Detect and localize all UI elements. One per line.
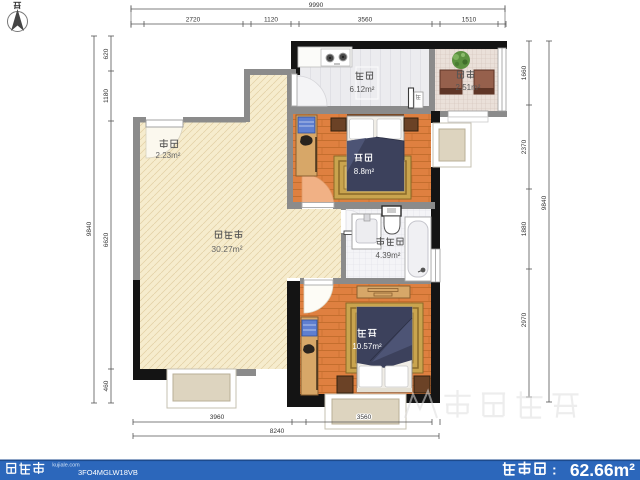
svg-text:2370: 2370 [521,139,528,154]
svg-text:1510: 1510 [462,17,477,24]
svg-text:10.57m²: 10.57m² [352,342,382,351]
svg-text:8240: 8240 [270,428,285,435]
svg-text:2.51m²: 2.51m² [456,83,481,92]
svg-text:9840: 9840 [86,221,93,236]
svg-text:2970: 2970 [521,312,528,327]
svg-text:3560: 3560 [357,414,372,421]
svg-text:62.66m²: 62.66m² [570,460,635,480]
svg-text::: : [552,462,557,478]
svg-text:3560: 3560 [358,17,373,24]
svg-text:kujiale.com: kujiale.com [52,463,80,469]
svg-text:6.12m²: 6.12m² [350,85,375,94]
svg-text:4.39m²: 4.39m² [376,251,401,260]
svg-text:1880: 1880 [521,221,528,236]
svg-text:1120: 1120 [264,17,278,24]
svg-text:2.23m²: 2.23m² [156,151,181,160]
svg-text:1180: 1180 [103,89,110,103]
svg-text:8.8m²: 8.8m² [354,167,375,176]
svg-text:2720: 2720 [186,17,201,24]
svg-text:1660: 1660 [521,65,528,80]
svg-text:460: 460 [103,380,110,391]
svg-text:3960: 3960 [210,414,225,421]
svg-text:3FO4MGLW18VB: 3FO4MGLW18VB [78,468,138,477]
svg-text:6620: 6620 [103,232,110,247]
svg-text:9990: 9990 [309,2,324,9]
svg-text:9840: 9840 [541,195,548,210]
svg-text:30.27m²: 30.27m² [211,244,242,254]
svg-text:620: 620 [103,48,110,59]
